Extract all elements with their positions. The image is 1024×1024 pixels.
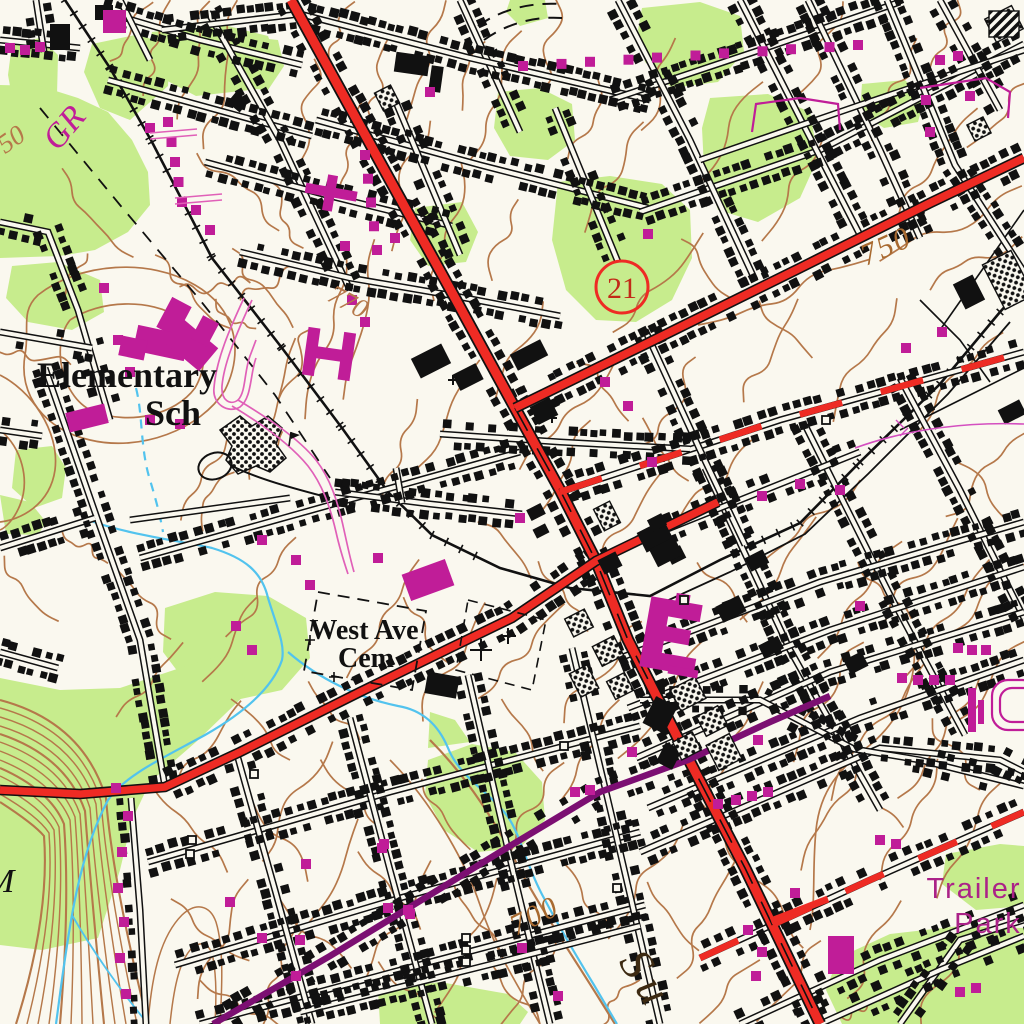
svg-text:Cem: Cem <box>338 643 394 674</box>
svg-text:Park: Park <box>954 908 1022 940</box>
svg-text:21: 21 <box>607 272 637 305</box>
svg-text:West Ave: West Ave <box>309 615 418 646</box>
svg-text:Sch: Sch <box>145 393 201 433</box>
svg-text:Elementary: Elementary <box>37 355 217 395</box>
svg-text:M: M <box>0 863 16 900</box>
svg-text:Trailer: Trailer <box>926 873 1021 905</box>
